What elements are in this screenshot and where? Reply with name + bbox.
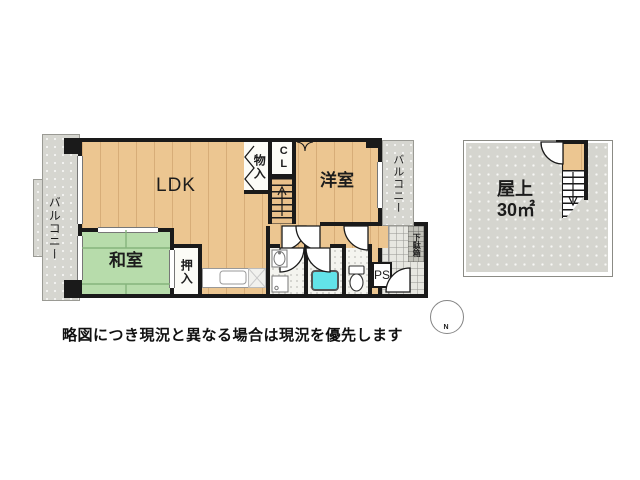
shoe-cabinet-label: 下駄箱	[409, 228, 423, 261]
ldk-label: LDK	[146, 176, 206, 196]
wall-western-room-bottom	[320, 222, 382, 226]
rooftop-stairs-right-wall	[584, 140, 588, 200]
wall-stairs-left	[268, 142, 272, 224]
rooftop-stairs-landing	[562, 144, 584, 170]
ldk-balcony-window	[77, 156, 83, 224]
wall-cl-bottom	[272, 174, 292, 178]
washroom-floor	[270, 248, 304, 294]
compass-north-label: N	[441, 323, 451, 332]
washitsu-sliding-door-top	[98, 227, 158, 233]
rooftop-name-label: 屋上	[497, 180, 533, 199]
pipe-space-label: PS	[372, 264, 392, 286]
washitsu-balcony-window	[77, 236, 83, 280]
rooftop-area-label: 30㎡	[497, 201, 535, 220]
stove-tile	[248, 268, 266, 288]
wall-bath-washroom	[304, 244, 308, 294]
wall-washroom-left	[266, 226, 270, 294]
corner-block-bottom-left	[64, 280, 82, 298]
disclaimer-note: 略図につき現況と異なる場合は現況を優先します	[62, 324, 403, 345]
bathtub	[311, 270, 339, 291]
washitsu-sliding-door-right	[169, 250, 175, 288]
western-room-window	[377, 162, 383, 208]
hallway-to-entrance	[378, 226, 388, 248]
wall-oshiire-right	[198, 244, 202, 294]
toilet-floor	[346, 248, 368, 294]
storage-label: 物入	[252, 146, 266, 188]
cl-label: CL	[276, 143, 290, 173]
balcony-left-label: バルコニー	[44, 186, 64, 270]
wall-stairs-right	[292, 142, 296, 224]
wall-hall-south-1	[266, 244, 280, 248]
staircase	[272, 178, 292, 224]
japanese-room-label: 和室	[96, 252, 156, 270]
wall-toilet-left	[342, 244, 346, 294]
oshiire-label: 押入	[178, 252, 194, 292]
wall-hall-south-2	[330, 244, 342, 248]
balcony-right-label: バルコニー	[389, 146, 405, 222]
corner-block-top-left	[64, 138, 82, 154]
floorplan-image: バルコニー バルコニー	[0, 0, 640, 480]
western-room-label: 洋室	[307, 172, 367, 190]
